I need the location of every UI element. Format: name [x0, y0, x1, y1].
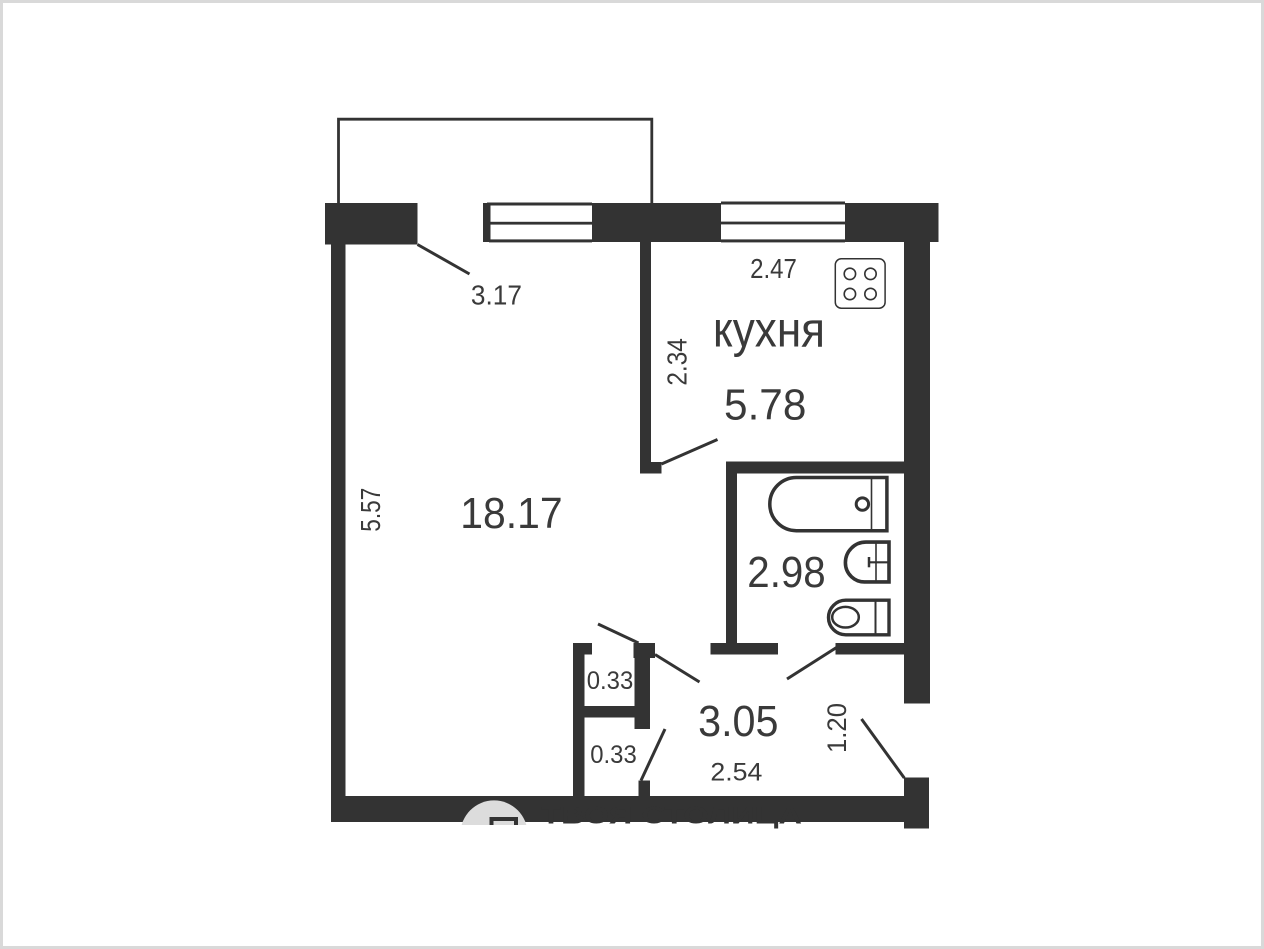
svg-text:2.34: 2.34 — [662, 338, 693, 386]
svg-text:2.98: 2.98 — [747, 548, 825, 597]
svg-text:5.57: 5.57 — [355, 488, 386, 532]
svg-text:3.17: 3.17 — [471, 280, 522, 311]
svg-text:5.78: 5.78 — [724, 381, 806, 430]
svg-text:1.20: 1.20 — [822, 703, 852, 753]
svg-text:0.33: 0.33 — [587, 667, 634, 695]
svg-text:ТВОЯ СТОЛИЦА: ТВОЯ СТОЛИЦА — [541, 803, 802, 830]
svg-text:18.17: 18.17 — [460, 489, 562, 538]
svg-text:0.33: 0.33 — [590, 741, 637, 769]
svg-text:2.54: 2.54 — [710, 759, 762, 787]
svg-text:3.05: 3.05 — [698, 697, 778, 746]
svg-text:кухня: кухня — [713, 302, 825, 358]
svg-text:2.47: 2.47 — [750, 253, 797, 284]
